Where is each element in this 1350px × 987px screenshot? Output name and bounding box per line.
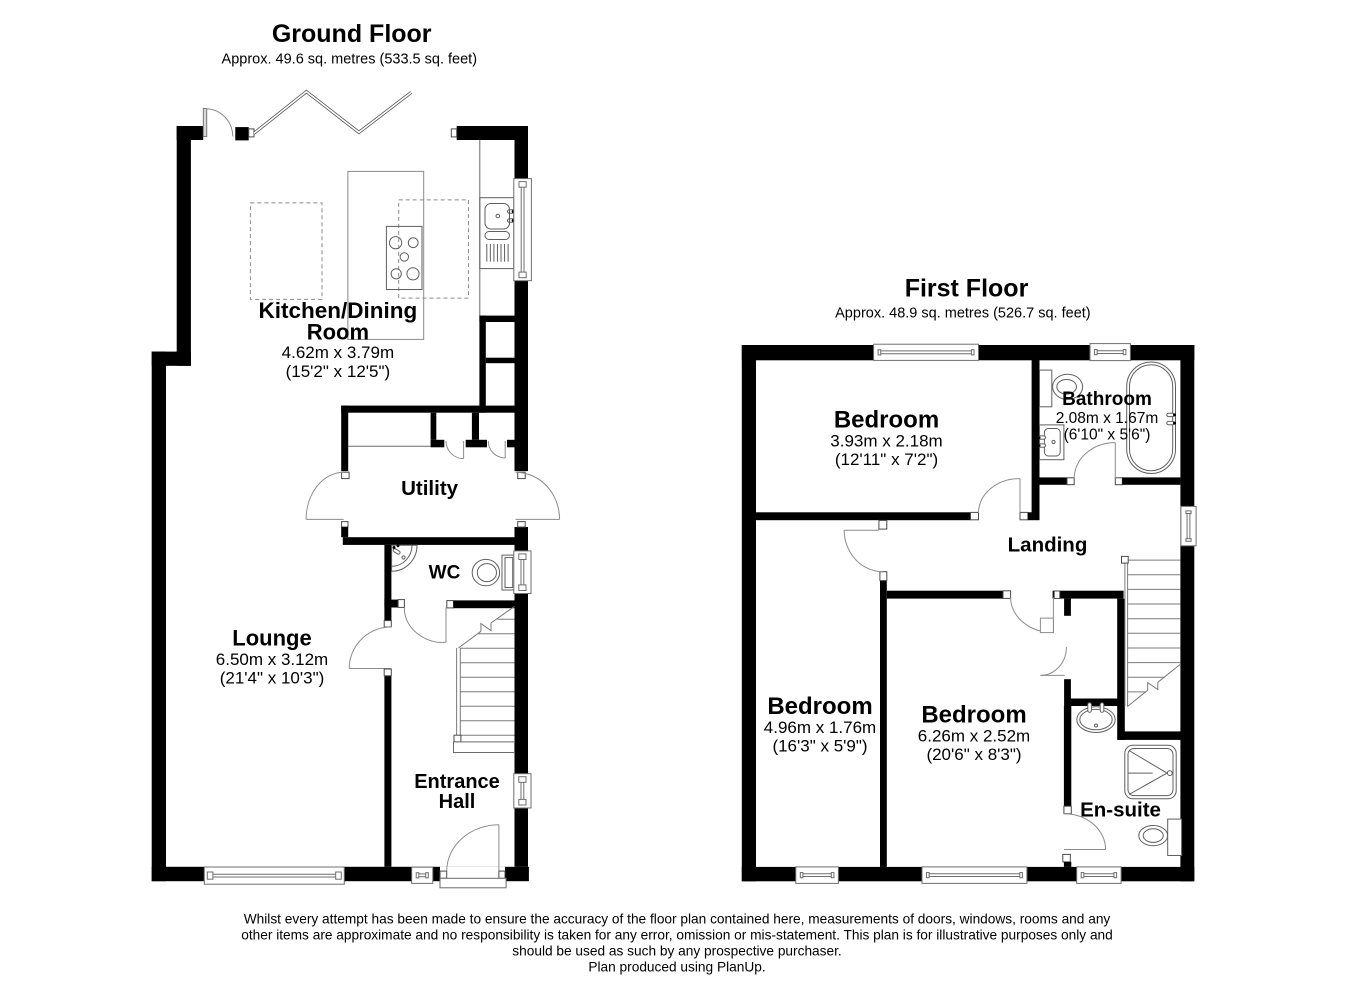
svg-text:Room: Room — [307, 320, 369, 345]
svg-text:Approx. 49.6 sq. metres (533.5: Approx. 49.6 sq. metres (533.5 sq. feet) — [222, 52, 478, 68]
svg-text:Bedroom: Bedroom — [921, 702, 1026, 729]
svg-text:should be used as such by any: should be used as such by any prospectiv… — [512, 944, 841, 959]
svg-text:Entrance: Entrance — [414, 771, 500, 793]
svg-text:En-suite: En-suite — [1080, 799, 1161, 822]
svg-text:Ground Floor: Ground Floor — [272, 20, 432, 48]
svg-text:6.26m x 2.52m: 6.26m x 2.52m — [918, 727, 1030, 746]
svg-text:Bathroom: Bathroom — [1062, 389, 1152, 410]
svg-text:(21'4" x 10'3"): (21'4" x 10'3") — [220, 669, 325, 688]
svg-text:Lounge: Lounge — [232, 626, 311, 651]
svg-text:4.96m x 1.76m: 4.96m x 1.76m — [764, 718, 876, 737]
svg-text:2.08m x 1.67m: 2.08m x 1.67m — [1056, 410, 1159, 427]
svg-text:Plan produced using PlanUp.: Plan produced using PlanUp. — [588, 960, 765, 975]
svg-text:(6'10" x 5'6"): (6'10" x 5'6") — [1064, 427, 1151, 444]
svg-text:Utility: Utility — [401, 477, 459, 500]
svg-text:First Floor: First Floor — [905, 275, 1029, 303]
svg-text:other items are approximate an: other items are approximate and no respo… — [241, 928, 1113, 943]
svg-text:WC: WC — [429, 563, 461, 584]
svg-text:Approx. 48.9 sq. metres (526.7: Approx. 48.9 sq. metres (526.7 sq. feet) — [835, 306, 1091, 322]
svg-text:Whilst every attempt has been: Whilst every attempt has been made to en… — [244, 912, 1111, 927]
svg-text:(20'6" x 8'3"): (20'6" x 8'3") — [926, 745, 1021, 764]
svg-text:3.93m x 2.18m: 3.93m x 2.18m — [830, 432, 942, 451]
svg-text:(16'3" x 5'9"): (16'3" x 5'9") — [772, 736, 867, 755]
svg-text:Bedroom: Bedroom — [834, 407, 939, 434]
svg-text:4.62m x 3.79m: 4.62m x 3.79m — [282, 343, 394, 362]
svg-text:Hall: Hall — [439, 791, 476, 813]
svg-text:Bedroom: Bedroom — [767, 693, 872, 720]
svg-text:(12'11" x 7'2"): (12'11" x 7'2") — [835, 450, 938, 469]
svg-text:6.50m x 3.12m: 6.50m x 3.12m — [216, 650, 328, 669]
svg-text:Landing: Landing — [1008, 534, 1088, 557]
svg-text:(15'2" x 12'5"): (15'2" x 12'5") — [286, 362, 391, 381]
